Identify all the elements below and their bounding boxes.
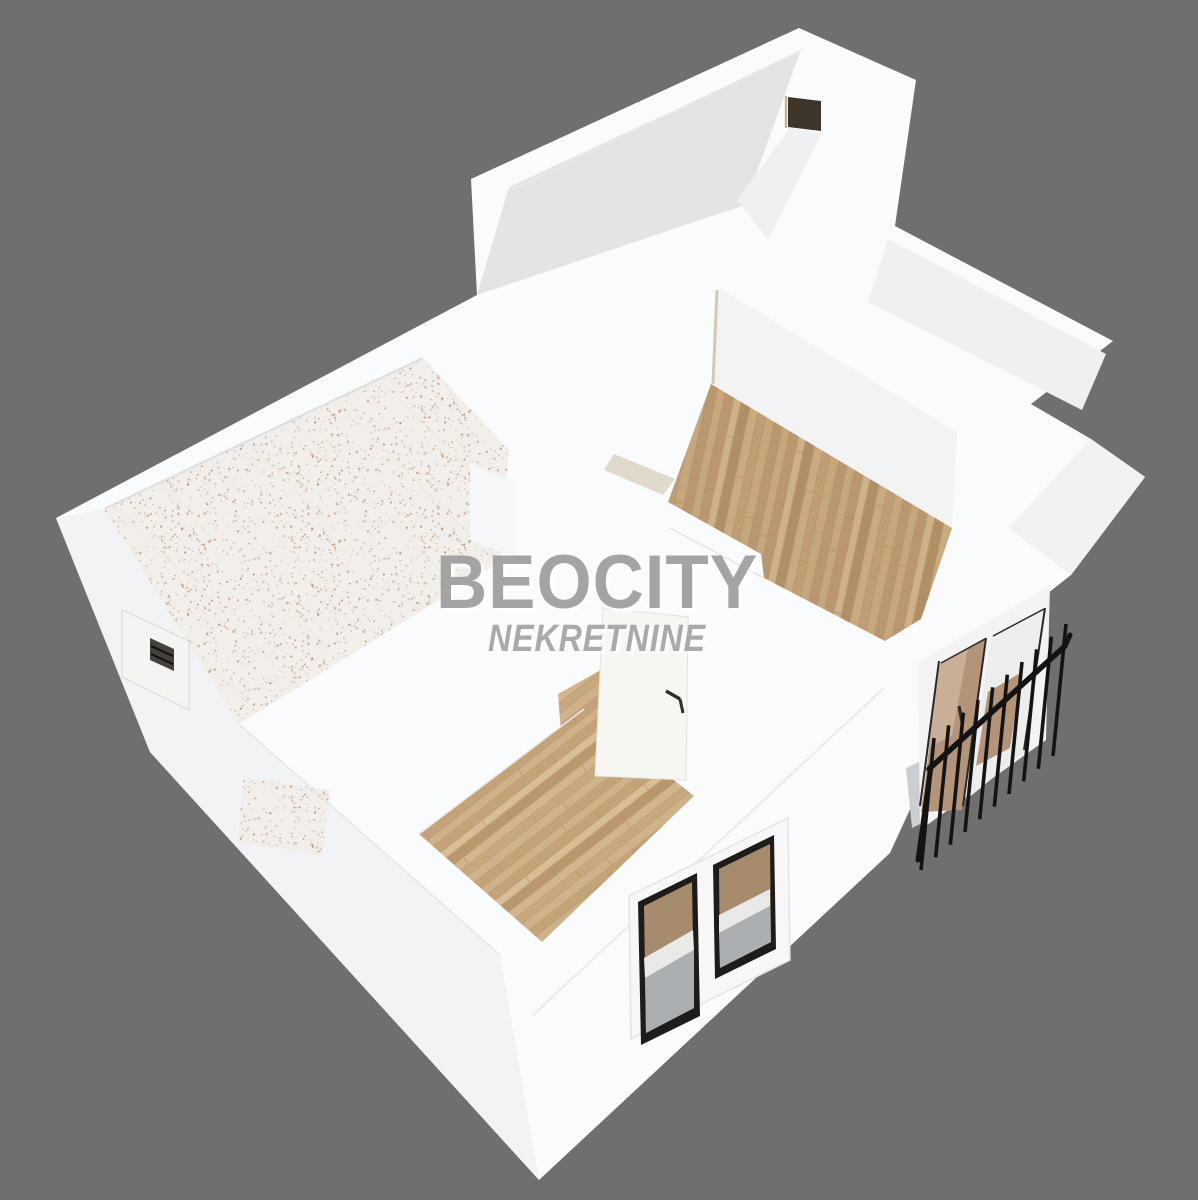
svg-text:BEOCITY: BEOCITY (436, 540, 758, 625)
svg-text:NEKRETNINE: NEKRETNINE (488, 618, 707, 660)
